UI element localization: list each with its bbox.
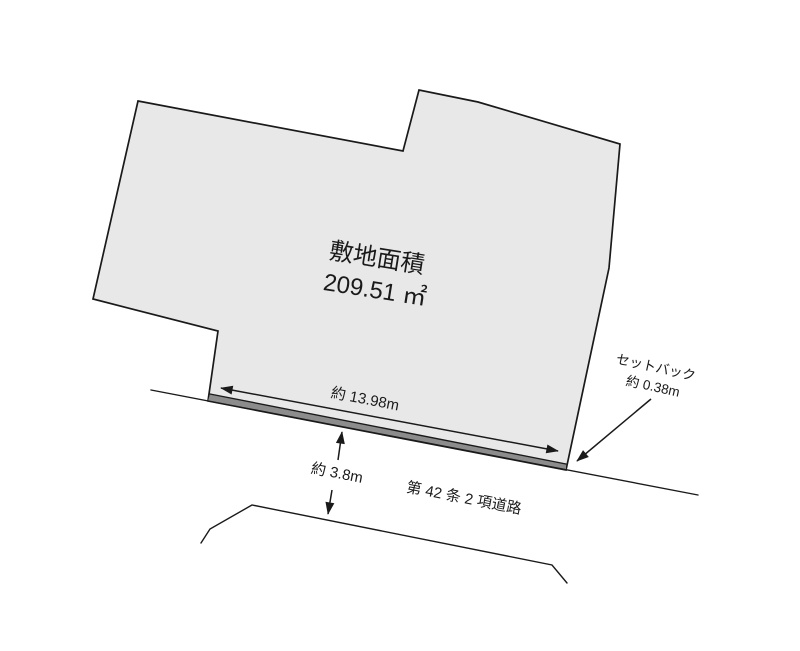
road-width-arrow-upper [338, 432, 342, 460]
road-width-arrow-lower [328, 490, 332, 514]
road-lower-edge-line [201, 505, 567, 583]
site-plan-diagram: 敷地面積 209.51 ㎡ 約 13.98m 約 3.8m セットバック 約 0… [0, 0, 800, 651]
setback-pointer-arrow [577, 399, 651, 461]
road-name-label: 第 42 条 2 項道路 [405, 478, 523, 518]
road-width-label: 約 3.8m [310, 460, 365, 487]
site-plan-canvas: 敷地面積 209.51 ㎡ 約 13.98m 約 3.8m セットバック 約 0… [0, 0, 800, 651]
